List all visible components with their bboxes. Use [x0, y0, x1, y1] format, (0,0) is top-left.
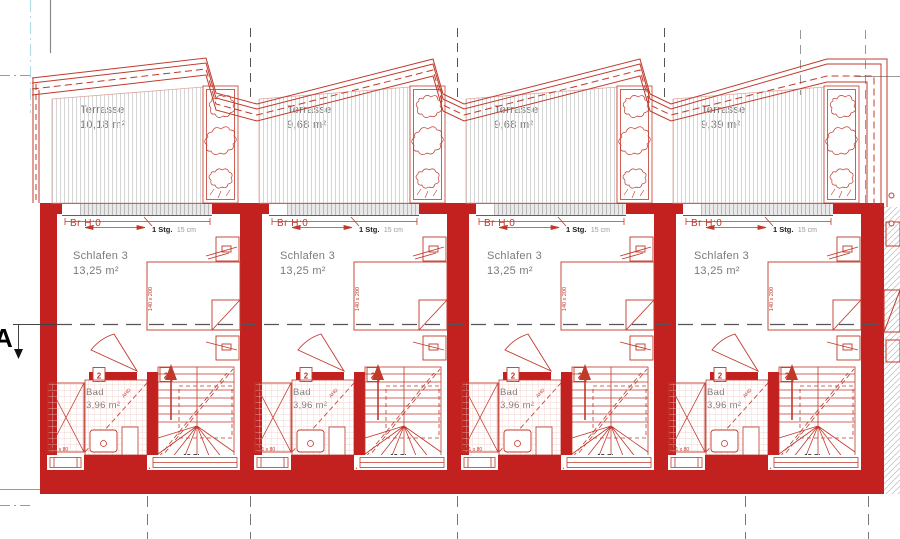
floor-plan-canvas: Terrasse 10,18 m² Br H:0 1 Stg. 15 cm Sc…	[0, 0, 900, 539]
tag-number: 2	[511, 372, 516, 381]
inner-wall	[89, 372, 137, 380]
terrace-floor-hatch	[466, 87, 617, 203]
terrace-door-threshold	[62, 203, 212, 216]
shrub	[619, 127, 651, 155]
winders	[365, 426, 441, 468]
pen-line	[206, 247, 237, 256]
terrace-door-threshold	[476, 203, 626, 216]
bedroom-name: Schlafen 3	[694, 249, 749, 264]
parapet-height-note: Br H:0	[70, 217, 101, 231]
inner-wall	[768, 372, 779, 380]
treads	[779, 374, 855, 422]
south-windows	[47, 455, 240, 470]
bath-name: Bad	[707, 387, 741, 400]
wc	[743, 427, 759, 455]
terrace-room-name: Terrasse	[701, 103, 746, 118]
bath-label: Bad 3,96 m²	[86, 387, 120, 413]
bath-stairs-wall	[354, 380, 365, 455]
pillow	[626, 300, 654, 330]
bed	[147, 262, 240, 330]
bedroom-label: Schlafen 3 13,25 m²	[73, 249, 128, 279]
south-windows	[668, 455, 861, 470]
threshold-hatch	[701, 204, 833, 215]
step-count: 1 Stg.	[773, 225, 793, 234]
shrub	[209, 169, 232, 188]
threshold-hatch	[494, 204, 626, 215]
threshold-hatch	[287, 204, 419, 215]
bath-label: Bad 3,96 m²	[293, 387, 327, 413]
bed	[354, 262, 447, 330]
treads	[158, 374, 234, 422]
bath-area: 3,96 m²	[86, 400, 120, 413]
bath-stairs-wall	[561, 380, 572, 455]
parapet-height-note: Br H:0	[484, 217, 515, 231]
shower: 161 x 80	[669, 383, 705, 453]
tag-number: 2	[97, 372, 102, 381]
pen-line	[413, 247, 444, 256]
pillow	[212, 300, 240, 330]
door-swing	[91, 334, 137, 371]
sink	[711, 430, 738, 452]
terrace-floor-hatch	[673, 87, 824, 203]
pen-line	[413, 342, 444, 350]
terrace-label: Terrasse 9,68 m²	[494, 103, 539, 133]
headroom-lines	[356, 369, 440, 469]
stairs-ratio: 20/25	[187, 462, 205, 469]
bedroom-name: Schlafen 3	[487, 249, 542, 264]
shrub	[205, 127, 237, 155]
bath-name: Bad	[293, 387, 327, 400]
shower-dimension: 161 x 80	[49, 447, 68, 453]
stairs-ratio: 20/25	[808, 462, 826, 469]
planter	[824, 86, 859, 203]
terrace-room-name: Terrasse	[80, 103, 126, 118]
drain	[101, 441, 107, 447]
treads	[365, 374, 441, 422]
diagonal-note: AHD	[535, 387, 547, 399]
pen-line	[827, 342, 858, 350]
terrace-room-area: 9,68 m²	[287, 118, 332, 133]
bed-dimension: 140 x 200	[769, 287, 775, 311]
winders	[779, 426, 855, 468]
inner-wall	[503, 372, 551, 380]
step-count: 1 Stg.	[566, 225, 586, 234]
wc	[329, 427, 345, 455]
door-tags: 2 2	[300, 368, 379, 382]
bed	[768, 262, 861, 330]
step-height: 15 cm	[177, 227, 196, 234]
bath-area: 3,96 m²	[293, 400, 327, 413]
wall-stub	[84, 455, 147, 470]
door-tags: 2 2	[507, 368, 586, 382]
door-swing	[505, 334, 551, 371]
terrace-floor-hatch	[52, 87, 203, 203]
wall-stub	[498, 455, 561, 470]
tag-number: 2	[304, 372, 309, 381]
bath-name: Bad	[86, 387, 120, 400]
house-unit-3: Terrasse 9,68 m² Br H:0 1 Stg. 15 cm Sch…	[454, 0, 677, 539]
bath-label: Bad 3,96 m²	[707, 387, 741, 413]
staircase	[770, 364, 855, 469]
pillow	[419, 300, 447, 330]
terrace-room-name: Terrasse	[287, 103, 332, 118]
pen-line	[620, 342, 651, 350]
bed-dimension: 140 x 200	[355, 287, 361, 311]
step-note: 1 Stg. 15 cm	[566, 217, 610, 239]
staircase	[149, 364, 234, 469]
step-height: 15 cm	[384, 227, 403, 234]
up-arrow	[165, 364, 177, 380]
terrace-room-area: 9,39 m²	[701, 118, 746, 133]
tag-number: 2	[785, 372, 790, 381]
wall-stub	[291, 455, 354, 470]
units-layer: Terrasse 10,18 m² Br H:0 1 Stg. 15 cm Sc…	[0, 0, 900, 539]
stairs-ratio: 20/25	[394, 462, 412, 469]
step-count: 1 Stg.	[359, 225, 379, 234]
inner-wall	[296, 372, 344, 380]
winders	[572, 426, 648, 468]
shrub	[830, 95, 855, 117]
shower: 161 x 80	[462, 383, 498, 453]
headroom-lines	[770, 369, 854, 469]
headroom-lines	[563, 369, 647, 469]
stairs-count: 15 Stg.	[390, 454, 413, 461]
shrub	[416, 169, 439, 188]
staircase	[356, 364, 441, 469]
diagonal-note: AHD	[121, 387, 133, 399]
wc	[536, 427, 552, 455]
south-windows	[254, 455, 447, 470]
pillow	[833, 300, 861, 330]
bath-stairs-wall	[147, 380, 158, 455]
shrub	[623, 169, 646, 188]
bath-name: Bad	[500, 387, 534, 400]
terrace-label: Terrasse 10,18 m²	[80, 103, 126, 133]
nightstand	[630, 336, 653, 360]
pen-line	[827, 247, 858, 256]
door-tags: 2 2	[714, 368, 793, 382]
terrace-room-area: 10,18 m²	[80, 118, 126, 133]
diagonal-note: AHD	[742, 387, 754, 399]
up-arrow	[372, 364, 384, 380]
bath-label: Bad 3,96 m²	[500, 387, 534, 413]
headroom-lines	[149, 369, 233, 469]
nightstand	[423, 237, 446, 261]
planter	[203, 86, 238, 203]
nightstand	[216, 237, 239, 261]
bedroom-label: Schlafen 3 13,25 m²	[694, 249, 749, 279]
diagonal-note: AHD	[328, 387, 340, 399]
shrub	[209, 95, 234, 117]
stairs-ratio: 20/25	[601, 462, 619, 469]
step-note: 1 Stg. 15 cm	[152, 217, 196, 239]
step-count: 1 Stg.	[152, 225, 172, 234]
house-unit-2: Terrasse 9,68 m² Br H:0 1 Stg. 15 cm Sch…	[247, 0, 470, 539]
wc	[122, 427, 138, 455]
terrace-door-threshold	[683, 203, 833, 216]
drain	[722, 441, 728, 447]
shower: 161 x 80	[48, 383, 84, 453]
inner-wall	[147, 372, 158, 380]
shrub	[830, 169, 853, 188]
nightstand	[423, 336, 446, 360]
terrace-floor-hatch	[259, 87, 410, 203]
nightstand	[837, 237, 860, 261]
bedroom-area: 13,25 m²	[73, 264, 128, 279]
house-unit-4: Terrasse 9,39 m² Br H:0 1 Stg. 15 cm Sch…	[661, 0, 884, 539]
winders	[158, 426, 234, 468]
inner-wall	[710, 372, 758, 380]
bed	[561, 262, 654, 330]
bedroom-name: Schlafen 3	[280, 249, 335, 264]
sink	[297, 430, 324, 452]
door-tags: 2 2	[93, 368, 172, 382]
shrub	[412, 127, 444, 155]
shower-dimension: 161 x 80	[670, 447, 689, 453]
wall-stub	[705, 455, 768, 470]
bedroom-label: Schlafen 3 13,25 m²	[487, 249, 542, 279]
step-height: 15 cm	[591, 227, 610, 234]
terrace-label: Terrasse 9,39 m²	[701, 103, 746, 133]
shrub	[416, 95, 441, 117]
up-arrow	[579, 364, 591, 380]
parapet-height-note: Br H:0	[277, 217, 308, 231]
step-note: 1 Stg. 15 cm	[359, 217, 403, 239]
nightstand	[837, 336, 860, 360]
inner-wall	[561, 372, 572, 380]
stairs-count: 15 Stg.	[183, 454, 206, 461]
stairs-count: 15 Stg.	[804, 454, 827, 461]
staircase	[563, 364, 648, 469]
bedroom-label: Schlafen 3 13,25 m²	[280, 249, 335, 279]
nightstand	[630, 237, 653, 261]
terrace-label: Terrasse 9,68 m²	[287, 103, 332, 133]
tag-number: 2	[371, 372, 376, 381]
door-swing	[712, 334, 758, 371]
inner-wall	[354, 372, 365, 380]
bath-area: 3,96 m²	[500, 400, 534, 413]
bed-dimension: 140 x 200	[562, 287, 568, 311]
terrace-door-threshold	[269, 203, 419, 216]
tag-number: 2	[164, 372, 169, 381]
drain	[308, 441, 314, 447]
sink	[504, 430, 531, 452]
sink	[90, 430, 117, 452]
shower: 161 x 80	[255, 383, 291, 453]
bedroom-area: 13,25 m²	[487, 264, 542, 279]
shrub	[623, 95, 648, 117]
threshold-hatch	[80, 204, 212, 215]
door-swing	[298, 334, 344, 371]
tag-number: 2	[578, 372, 583, 381]
bed-dimension: 140 x 200	[148, 287, 154, 311]
bath-stairs-wall	[768, 380, 779, 455]
terrace-room-area: 9,68 m²	[494, 118, 539, 133]
shower-dimension: 161 x 80	[463, 447, 482, 453]
bath-area: 3,96 m²	[707, 400, 741, 413]
shower-dimension: 161 x 80	[256, 447, 275, 453]
south-windows	[461, 455, 654, 470]
bedroom-area: 13,25 m²	[280, 264, 335, 279]
tag-number: 2	[718, 372, 723, 381]
terrace-room-name: Terrasse	[494, 103, 539, 118]
step-height: 15 cm	[798, 227, 817, 234]
bedroom-area: 13,25 m²	[694, 264, 749, 279]
step-note: 1 Stg. 15 cm	[773, 217, 817, 239]
house-unit-1: Terrasse 10,18 m² Br H:0 1 Stg. 15 cm Sc…	[40, 0, 263, 539]
shrub	[826, 127, 858, 155]
nightstand	[216, 336, 239, 360]
up-arrow	[786, 364, 798, 380]
planter	[617, 86, 652, 203]
pen-line	[206, 342, 237, 350]
stairs-count: 15 Stg.	[597, 454, 620, 461]
bedroom-name: Schlafen 3	[73, 249, 128, 264]
pen-line	[620, 247, 651, 256]
parapet-height-note: Br H:0	[691, 217, 722, 231]
planter	[410, 86, 445, 203]
treads	[572, 374, 648, 422]
drain	[515, 441, 521, 447]
